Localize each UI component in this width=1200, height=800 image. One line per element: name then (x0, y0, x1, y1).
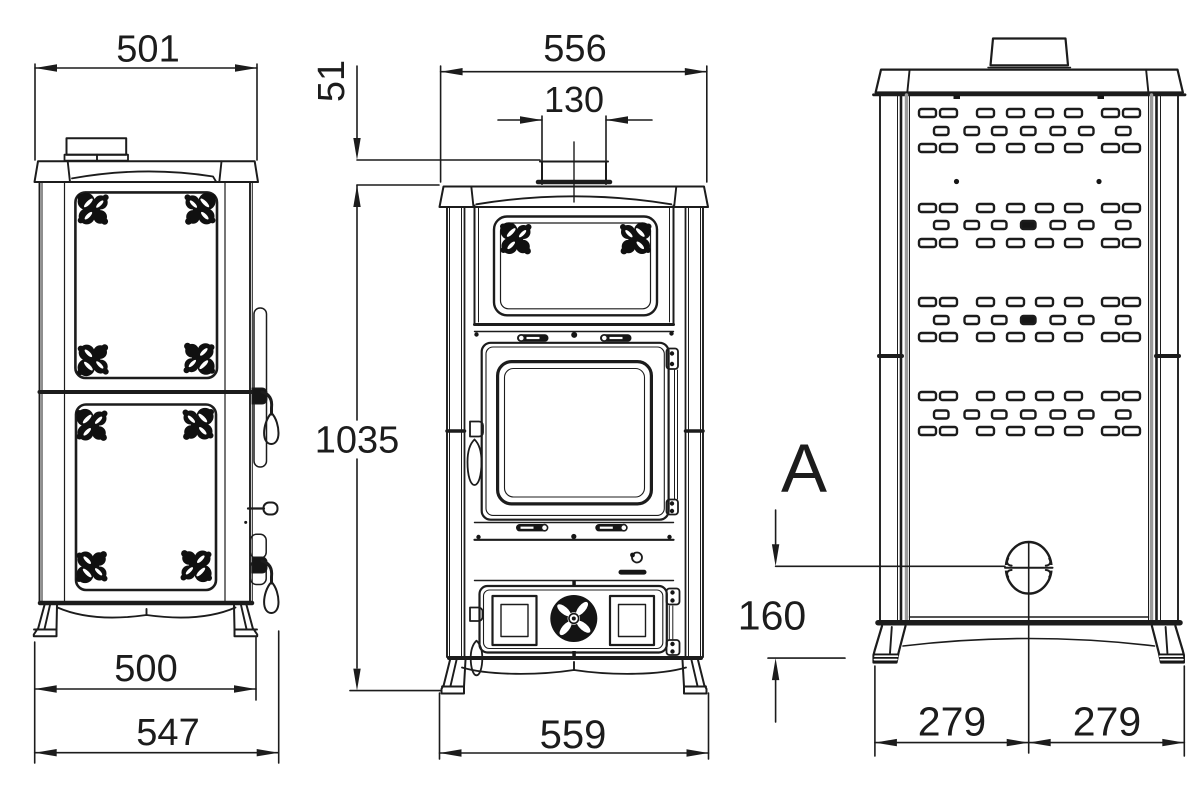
svg-text:500: 500 (114, 648, 177, 690)
svg-text:559: 559 (540, 713, 607, 757)
svg-text:501: 501 (116, 29, 179, 71)
svg-text:A: A (781, 430, 827, 507)
svg-text:1035: 1035 (315, 420, 400, 462)
svg-text:51: 51 (311, 60, 353, 102)
svg-text:160: 160 (738, 593, 806, 639)
svg-text:556: 556 (543, 28, 606, 70)
svg-text:279: 279 (1073, 699, 1141, 745)
svg-text:279: 279 (918, 699, 986, 745)
svg-text:130: 130 (544, 79, 604, 120)
svg-text:547: 547 (136, 712, 199, 754)
